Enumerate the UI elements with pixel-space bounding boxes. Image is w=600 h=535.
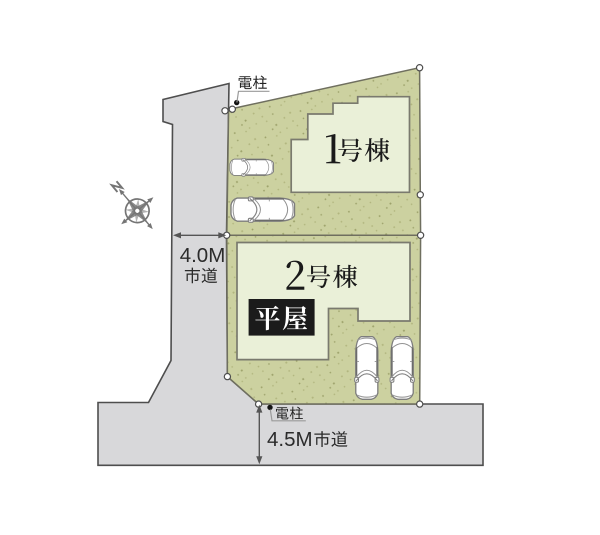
svg-text:4.5M: 4.5M [267,428,313,451]
svg-text:4.0M: 4.0M [180,244,226,267]
